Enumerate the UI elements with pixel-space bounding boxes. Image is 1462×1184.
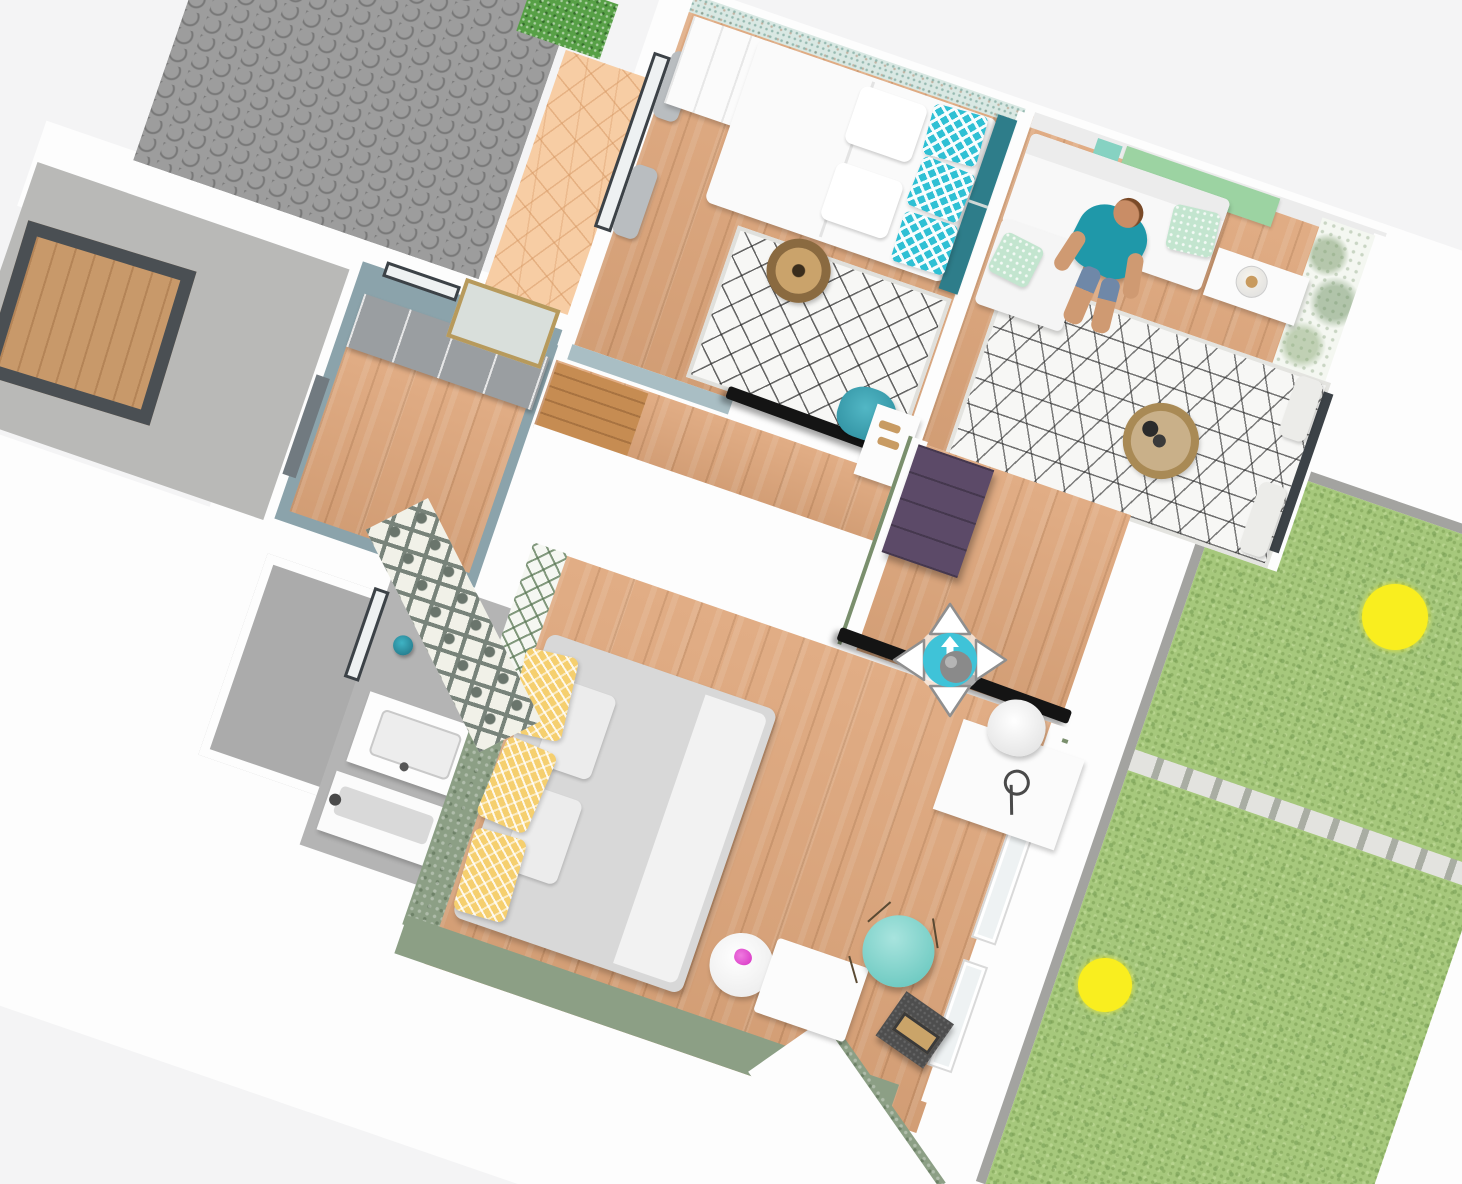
desk-wood-decor [877, 436, 900, 451]
rotated-plan-scene [0, 0, 1462, 1184]
nav-arrow-left[interactable] [894, 640, 924, 680]
navigation-widget-graphic [878, 588, 1022, 732]
garden-light-marker-1[interactable] [1362, 584, 1428, 650]
nav-arrow-up[interactable] [930, 604, 970, 634]
nav-arrow-right[interactable] [976, 640, 1006, 680]
nav-arrow-down[interactable] [930, 686, 970, 716]
lamp-wood-base [1244, 274, 1259, 289]
vanity-basin [368, 708, 463, 781]
stool-seat-slot [892, 1012, 941, 1055]
nav-sphere-handle[interactable] [940, 651, 972, 683]
camera-navigation-widget[interactable] [878, 588, 1022, 732]
wire-lamp-arm [1010, 785, 1014, 815]
floorplan-3d-viewport[interactable] [0, 0, 1462, 1184]
pink-flower [732, 947, 754, 968]
garden-light-marker-2[interactable] [1078, 958, 1132, 1012]
wire-desk-lamp [1000, 766, 1033, 799]
desk-wood-decor [878, 420, 901, 435]
nav-sphere-highlight [945, 656, 957, 668]
